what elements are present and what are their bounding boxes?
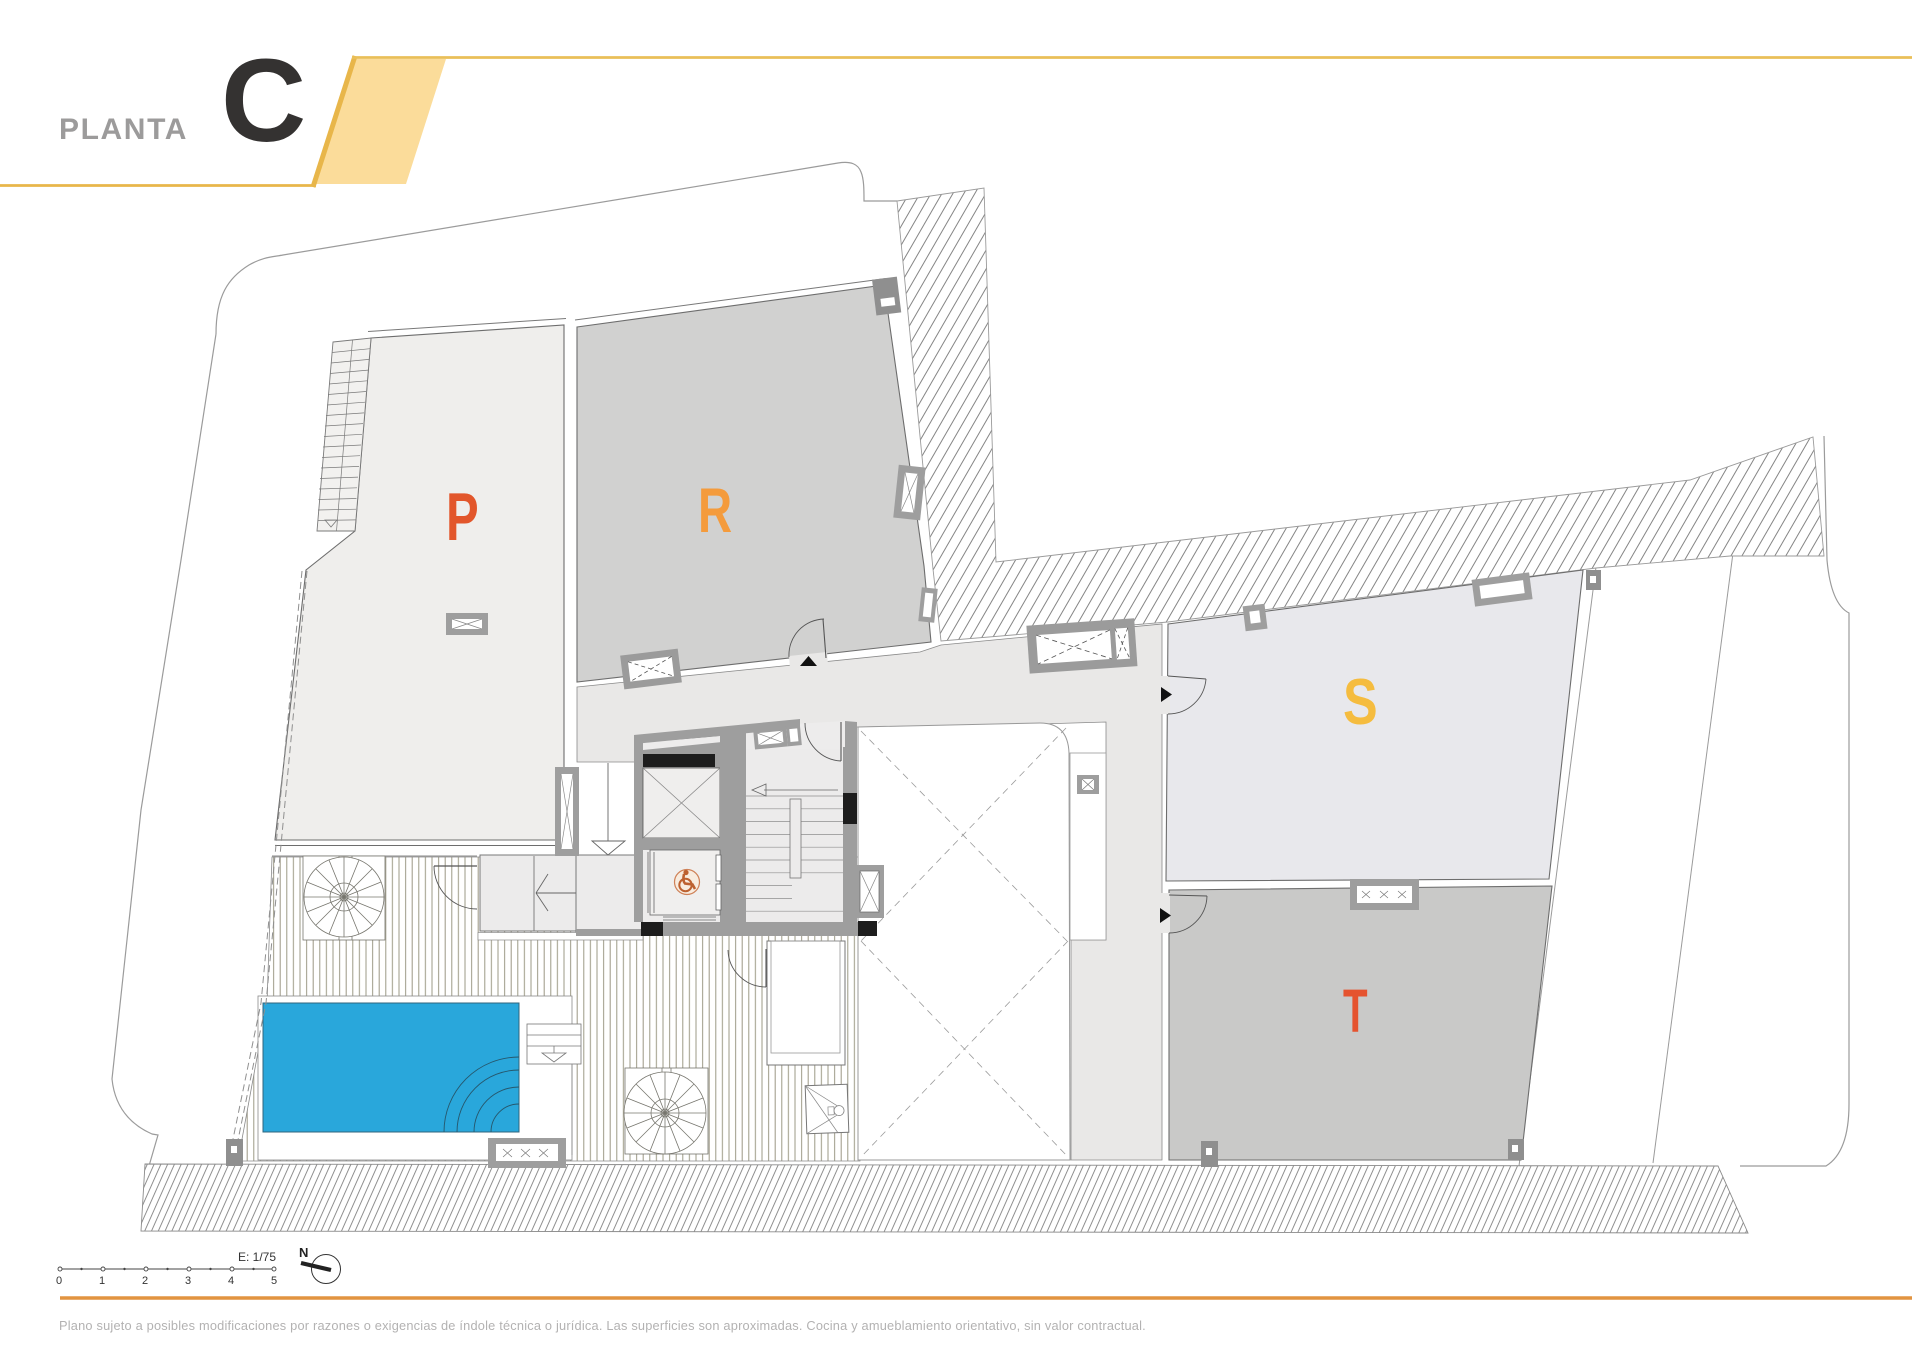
svg-text:N: N xyxy=(299,1245,308,1260)
svg-text:P: P xyxy=(446,478,479,555)
svg-text:T: T xyxy=(1343,977,1368,1045)
svg-text:3: 3 xyxy=(185,1275,191,1287)
svg-text:0: 0 xyxy=(56,1275,62,1287)
svg-text:C: C xyxy=(221,35,306,167)
svg-text:2: 2 xyxy=(142,1275,148,1287)
svg-text:S: S xyxy=(1343,667,1378,739)
svg-text:5: 5 xyxy=(271,1275,277,1287)
svg-text:E: 1/75: E: 1/75 xyxy=(238,1250,276,1264)
svg-text:PLANTA: PLANTA xyxy=(59,113,188,146)
svg-text:1: 1 xyxy=(99,1275,105,1287)
svg-text:4: 4 xyxy=(228,1275,234,1287)
svg-text:Plano sujeto a posibles modifi: Plano sujeto a posibles modificaciones p… xyxy=(59,1318,1146,1333)
svg-text:R: R xyxy=(698,475,732,545)
